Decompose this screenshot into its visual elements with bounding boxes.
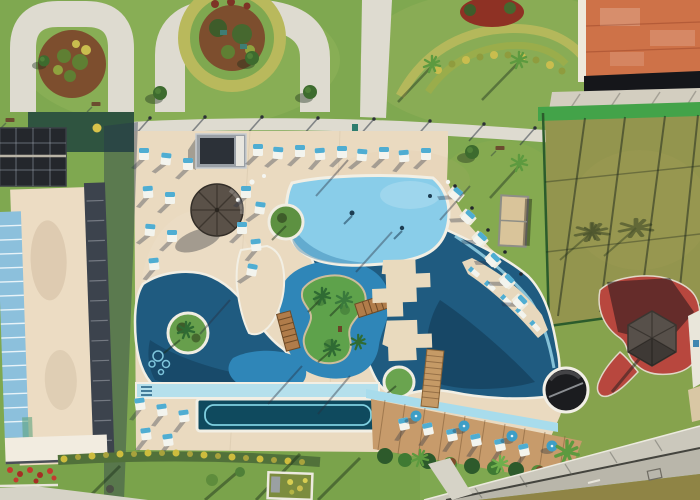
bush bbox=[206, 474, 218, 486]
tiki-post bbox=[338, 326, 342, 332]
court-shed bbox=[499, 195, 533, 247]
trash-bin bbox=[352, 124, 358, 132]
lap-pool bbox=[197, 399, 379, 431]
hedge-base bbox=[58, 456, 320, 462]
garden-bed-sign bbox=[268, 472, 313, 500]
utility-box bbox=[647, 469, 662, 481]
poolside-cabana bbox=[188, 134, 246, 170]
turf-plant bbox=[93, 124, 102, 133]
resort-scene bbox=[0, 0, 700, 500]
garden-bin bbox=[106, 485, 114, 493]
roof-gutter bbox=[578, 0, 586, 82]
round-platform bbox=[544, 368, 588, 412]
bush bbox=[235, 467, 245, 477]
aerial-resort-photo bbox=[0, 0, 700, 500]
deck-planter-circle bbox=[269, 205, 303, 240]
